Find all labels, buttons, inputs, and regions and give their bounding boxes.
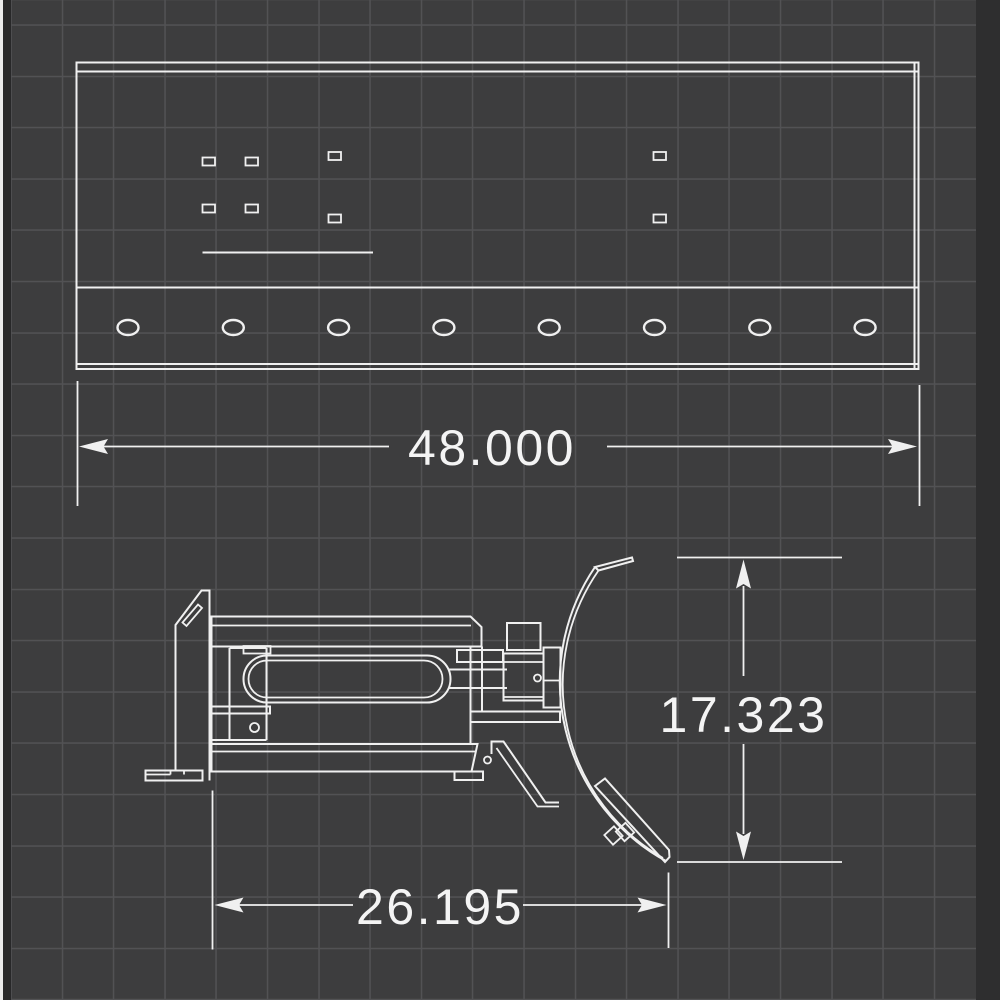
mast-foot (146, 771, 203, 781)
push-frame (212, 617, 561, 807)
edge-hole-row (118, 320, 876, 335)
frame-top-chord (212, 617, 482, 647)
edge-hole (539, 320, 560, 335)
edge-hole (328, 320, 349, 335)
bolt-slot (654, 152, 667, 160)
bolt-slot (329, 215, 342, 223)
lower-arm (471, 712, 561, 723)
dimension-depth: 26.195 (213, 791, 669, 950)
dimension-height: 17.323 (660, 558, 842, 863)
edge-hole (433, 320, 454, 335)
frame-bottom-chord (212, 744, 478, 772)
top-view-drawing (77, 63, 919, 370)
width-dimension-label: 48.000 (408, 420, 576, 476)
bolt-slot (329, 152, 342, 160)
blade-bracket (504, 654, 544, 701)
height-dimension-label: 17.323 (660, 687, 828, 743)
blade-outline (77, 63, 919, 370)
dimension-width: 48.000 (78, 381, 920, 506)
right-border-band (976, 0, 1000, 1000)
edge-hole (644, 320, 665, 335)
edge-hole (223, 320, 244, 335)
lower-gusset (492, 742, 560, 803)
trip-spring-tube-inner (249, 661, 443, 698)
bracket-bolt-hole (534, 675, 541, 682)
bolt-slot (654, 215, 667, 223)
cutting-edge-bar (595, 779, 670, 863)
arrow-down-icon (736, 832, 751, 861)
bolt-slot (203, 158, 216, 166)
lower-support-plate (212, 707, 271, 714)
moldboard-inner-arc (563, 571, 663, 859)
edge-hole (855, 320, 876, 335)
edge-hole (749, 320, 770, 335)
moldboard-top-tab (595, 558, 633, 571)
bolt-slot (246, 158, 259, 166)
bolt-slot (246, 205, 259, 213)
piston-rod (449, 670, 507, 689)
left-border-band (3, 0, 11, 1000)
mount-slot-pattern (203, 152, 667, 223)
gusset-bolt-hole (484, 757, 491, 764)
depth-dimension-label: 26.195 (356, 879, 524, 935)
edge-hole (118, 320, 139, 335)
mount-mast (146, 591, 210, 781)
cylinder-mount-block (507, 623, 541, 650)
mast-slot (183, 605, 203, 627)
mount-plate (457, 650, 503, 662)
blade-back-plate (544, 648, 561, 708)
blade-profile (560, 558, 670, 863)
trip-spring-tube (244, 656, 451, 703)
technical-drawing: 48.000 (0, 0, 1000, 1000)
bolt-slot (203, 205, 216, 213)
blueprint-canvas: 48.000 (0, 0, 1000, 1000)
arrow-up-icon (736, 560, 751, 589)
side-view-drawing (146, 558, 670, 863)
pivot-bolt-hole (250, 723, 259, 732)
skid-foot (455, 772, 484, 781)
